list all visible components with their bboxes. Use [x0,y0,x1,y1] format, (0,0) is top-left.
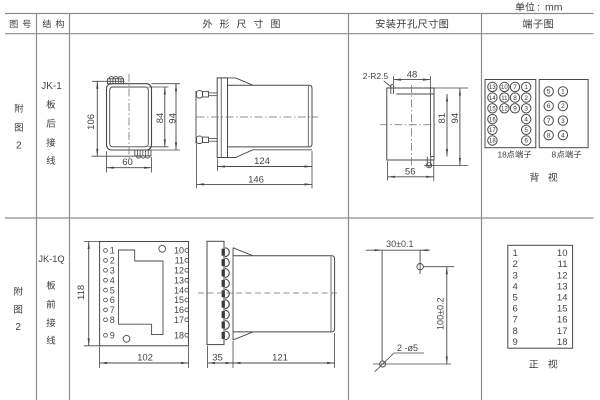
svg-text:9: 9 [513,106,517,113]
svg-text:10: 10 [557,248,568,259]
svg-text:5: 5 [110,285,115,295]
svg-text:7: 7 [513,84,517,91]
svg-text:5: 5 [524,127,528,134]
svg-text:94: 94 [450,113,461,124]
svg-text:35: 35 [212,353,223,364]
svg-text:18: 18 [174,331,184,341]
svg-text:15: 15 [174,295,184,305]
svg-text:JK-1Q: JK-1Q [38,254,64,264]
svg-text:4: 4 [524,116,528,123]
svg-text:94: 94 [167,113,178,124]
svg-text:14: 14 [557,293,568,304]
svg-text:3: 3 [561,118,565,125]
svg-text:2: 2 [16,140,22,151]
svg-text:18: 18 [489,139,496,145]
svg-text:81: 81 [437,113,448,124]
svg-text:124: 124 [254,156,270,167]
svg-text:14: 14 [489,96,496,102]
svg-text:17: 17 [174,315,184,325]
svg-text:16: 16 [557,315,568,326]
svg-text:12: 12 [174,266,184,276]
svg-text:5: 5 [513,293,518,304]
svg-text:2-R2.5: 2-R2.5 [363,71,389,81]
svg-text:6: 6 [110,295,115,305]
svg-text:6: 6 [524,138,528,145]
svg-text:48: 48 [407,69,418,80]
svg-text:17: 17 [557,326,568,337]
svg-text:1: 1 [110,246,115,256]
svg-text:3: 3 [110,266,115,276]
svg-text:60: 60 [122,157,133,168]
svg-text:mm: mm [545,2,563,14]
svg-text:106: 106 [86,114,97,130]
svg-text:2: 2 [110,256,115,266]
svg-text:15: 15 [557,304,568,315]
svg-text:10: 10 [501,85,508,91]
svg-text:56: 56 [405,166,416,177]
svg-text:14: 14 [174,285,184,295]
svg-text:9: 9 [110,331,115,341]
svg-text:8: 8 [110,315,115,325]
svg-text:16: 16 [174,305,184,315]
svg-text:2: 2 [524,95,528,102]
svg-text:8: 8 [513,326,518,337]
svg-text:2: 2 [513,259,518,270]
svg-text:7: 7 [513,315,518,326]
svg-text:84: 84 [155,113,166,124]
svg-text:2 -ø5: 2 -ø5 [397,343,418,353]
svg-text:8: 8 [513,95,517,102]
svg-text:146: 146 [248,174,264,185]
svg-text:JK-1: JK-1 [41,81,62,92]
svg-text:8: 8 [547,132,551,139]
svg-text:18: 18 [498,149,508,159]
svg-text:11: 11 [558,259,568,270]
svg-text:121: 121 [272,353,288,364]
svg-text:3: 3 [513,270,518,281]
svg-text:18: 18 [557,337,568,348]
svg-text:12: 12 [557,270,568,281]
svg-text:2: 2 [561,103,565,110]
svg-text:4: 4 [513,281,518,292]
svg-text:7: 7 [547,118,551,125]
svg-text:17: 17 [489,128,496,134]
svg-text:15: 15 [489,107,496,113]
svg-text:4: 4 [561,132,565,139]
svg-text:7: 7 [110,305,115,315]
svg-text:13: 13 [174,275,184,285]
svg-text:1: 1 [513,248,518,259]
svg-text:102: 102 [137,353,153,364]
svg-text::: : [537,3,540,14]
svg-text:2: 2 [15,322,21,333]
svg-text:10: 10 [174,246,184,256]
svg-text:11: 11 [501,96,508,102]
svg-text:3: 3 [524,106,528,113]
svg-text:1: 1 [561,89,565,96]
svg-text:11: 11 [175,256,184,266]
svg-text:118: 118 [76,285,87,300]
svg-text:6: 6 [513,304,518,315]
svg-text:8: 8 [552,149,557,159]
svg-text:4: 4 [110,275,115,285]
svg-text:16: 16 [489,117,496,123]
svg-text:13: 13 [557,281,568,292]
svg-text:6: 6 [547,103,551,110]
svg-text:100±0.2: 100±0.2 [435,297,445,329]
svg-text:13: 13 [489,85,496,91]
svg-text:30±0.1: 30±0.1 [386,239,413,249]
svg-text:9: 9 [513,337,518,348]
svg-text:12: 12 [501,107,508,113]
svg-text:5: 5 [547,89,551,96]
svg-text:1: 1 [524,84,528,91]
